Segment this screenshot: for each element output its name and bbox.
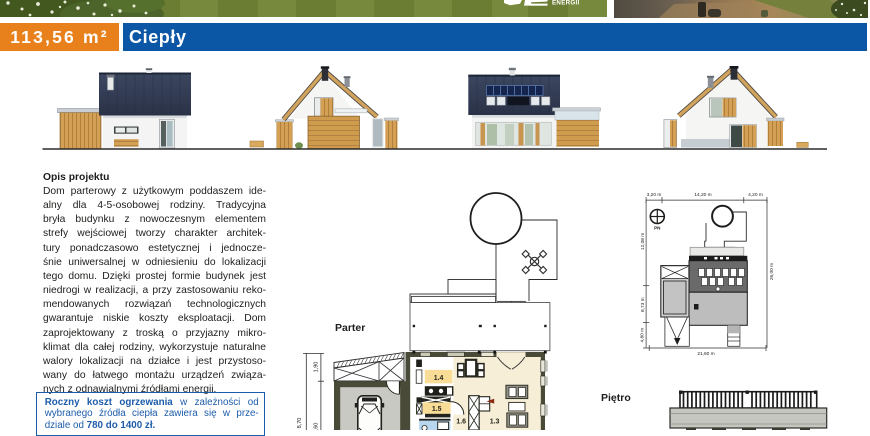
svg-text:8,70: 8,70 [297,418,303,429]
svg-text:4,80 m: 4,80 m [639,328,645,343]
svg-text:1,90: 1,90 [314,362,320,373]
svg-text:1.6: 1.6 [456,419,466,426]
svg-text:21,60 m: 21,60 m [697,351,714,357]
svg-text:1.3: 1.3 [490,419,500,426]
svg-text:3,20 m: 3,20 m [647,192,662,198]
svg-text:1.4: 1.4 [434,375,444,382]
svg-text:4,20 m: 4,20 m [748,192,763,198]
svg-text:5,60: 5,60 [314,423,320,430]
svg-text:PN: PN [654,226,661,231]
svg-text:26,00 m: 26,00 m [769,263,775,280]
svg-text:1.5: 1.5 [432,406,442,413]
svg-text:12,08 m: 12,08 m [640,233,646,250]
svg-text:8,73 m: 8,73 m [640,297,646,312]
svg-text:14,20 m: 14,20 m [694,192,711,198]
